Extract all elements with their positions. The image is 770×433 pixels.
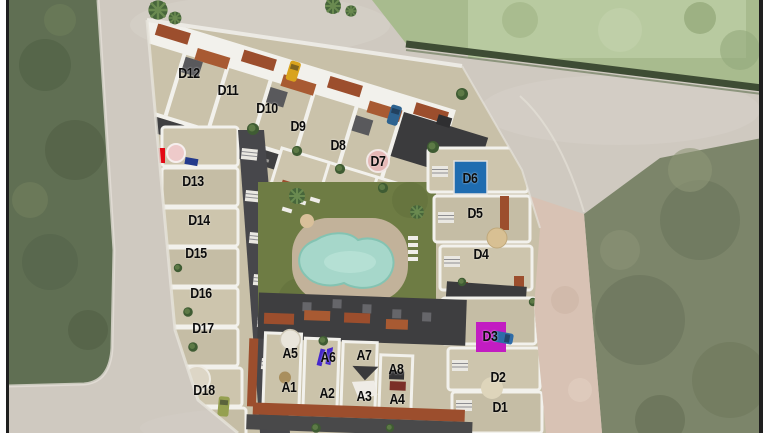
d5-umbrella (487, 228, 507, 248)
d2-terrace-circle (481, 377, 503, 399)
masterplan-image: D12D11D10D9D8D7D13D14D15D16D17D18D6D5D4D… (0, 0, 770, 433)
palm-tree-topleft (148, 0, 167, 19)
masterplan-graphic (0, 0, 770, 433)
left-green-field (8, 0, 114, 386)
olive-car (217, 396, 230, 417)
d6-pool-highlight (454, 161, 487, 194)
palm-tree-topcenter (325, 0, 341, 14)
a5-spiral-stair (280, 329, 301, 350)
garden-umbrella (300, 214, 314, 228)
pink-umbrella (167, 144, 185, 162)
a4-furniture (390, 381, 406, 391)
d7-umbrella (367, 150, 389, 172)
